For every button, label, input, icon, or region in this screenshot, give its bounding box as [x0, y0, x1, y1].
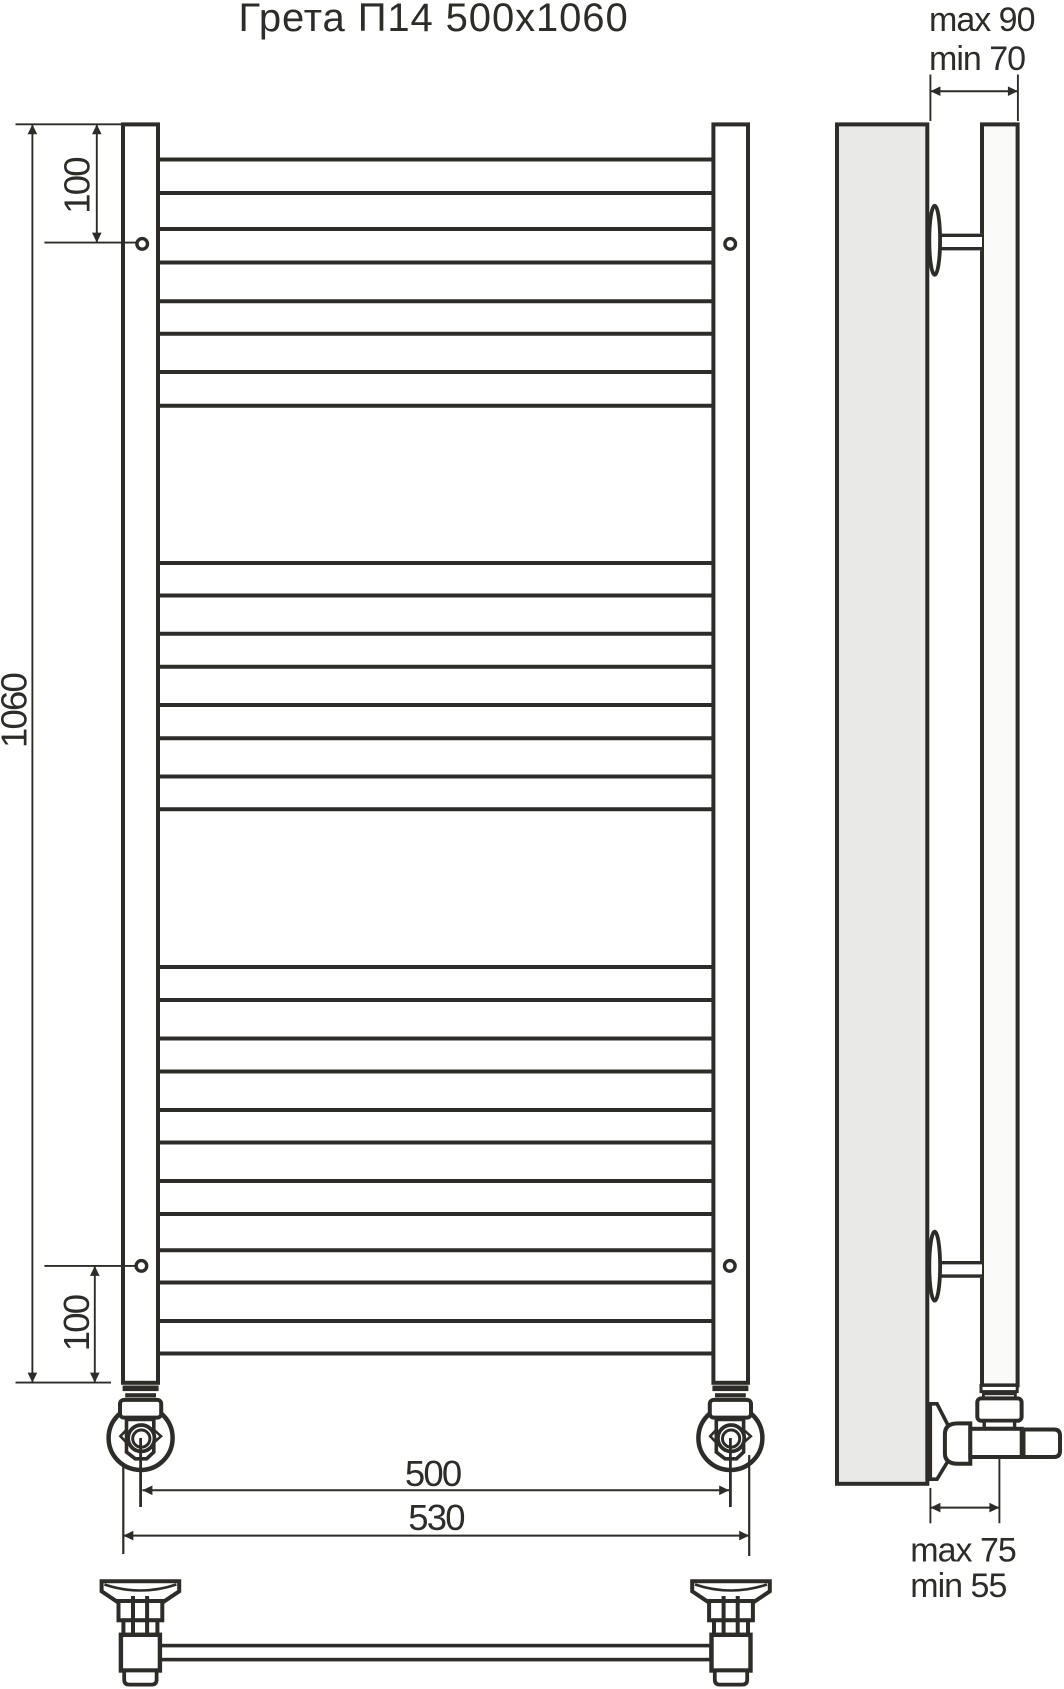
svg-text:Грета П14 500x1060: Грета П14 500x1060	[239, 0, 629, 40]
svg-text:530: 530	[408, 1497, 464, 1538]
svg-text:max 75: max 75	[910, 1532, 1016, 1570]
svg-text:100: 100	[57, 158, 98, 214]
svg-text:min 70: min 70	[929, 40, 1025, 78]
svg-text:min 55: min 55	[910, 1567, 1006, 1605]
svg-text:500: 500	[405, 1453, 461, 1494]
svg-text:max 90: max 90	[929, 1, 1035, 39]
svg-text:100: 100	[56, 1295, 97, 1351]
svg-text:1060: 1060	[0, 674, 35, 748]
